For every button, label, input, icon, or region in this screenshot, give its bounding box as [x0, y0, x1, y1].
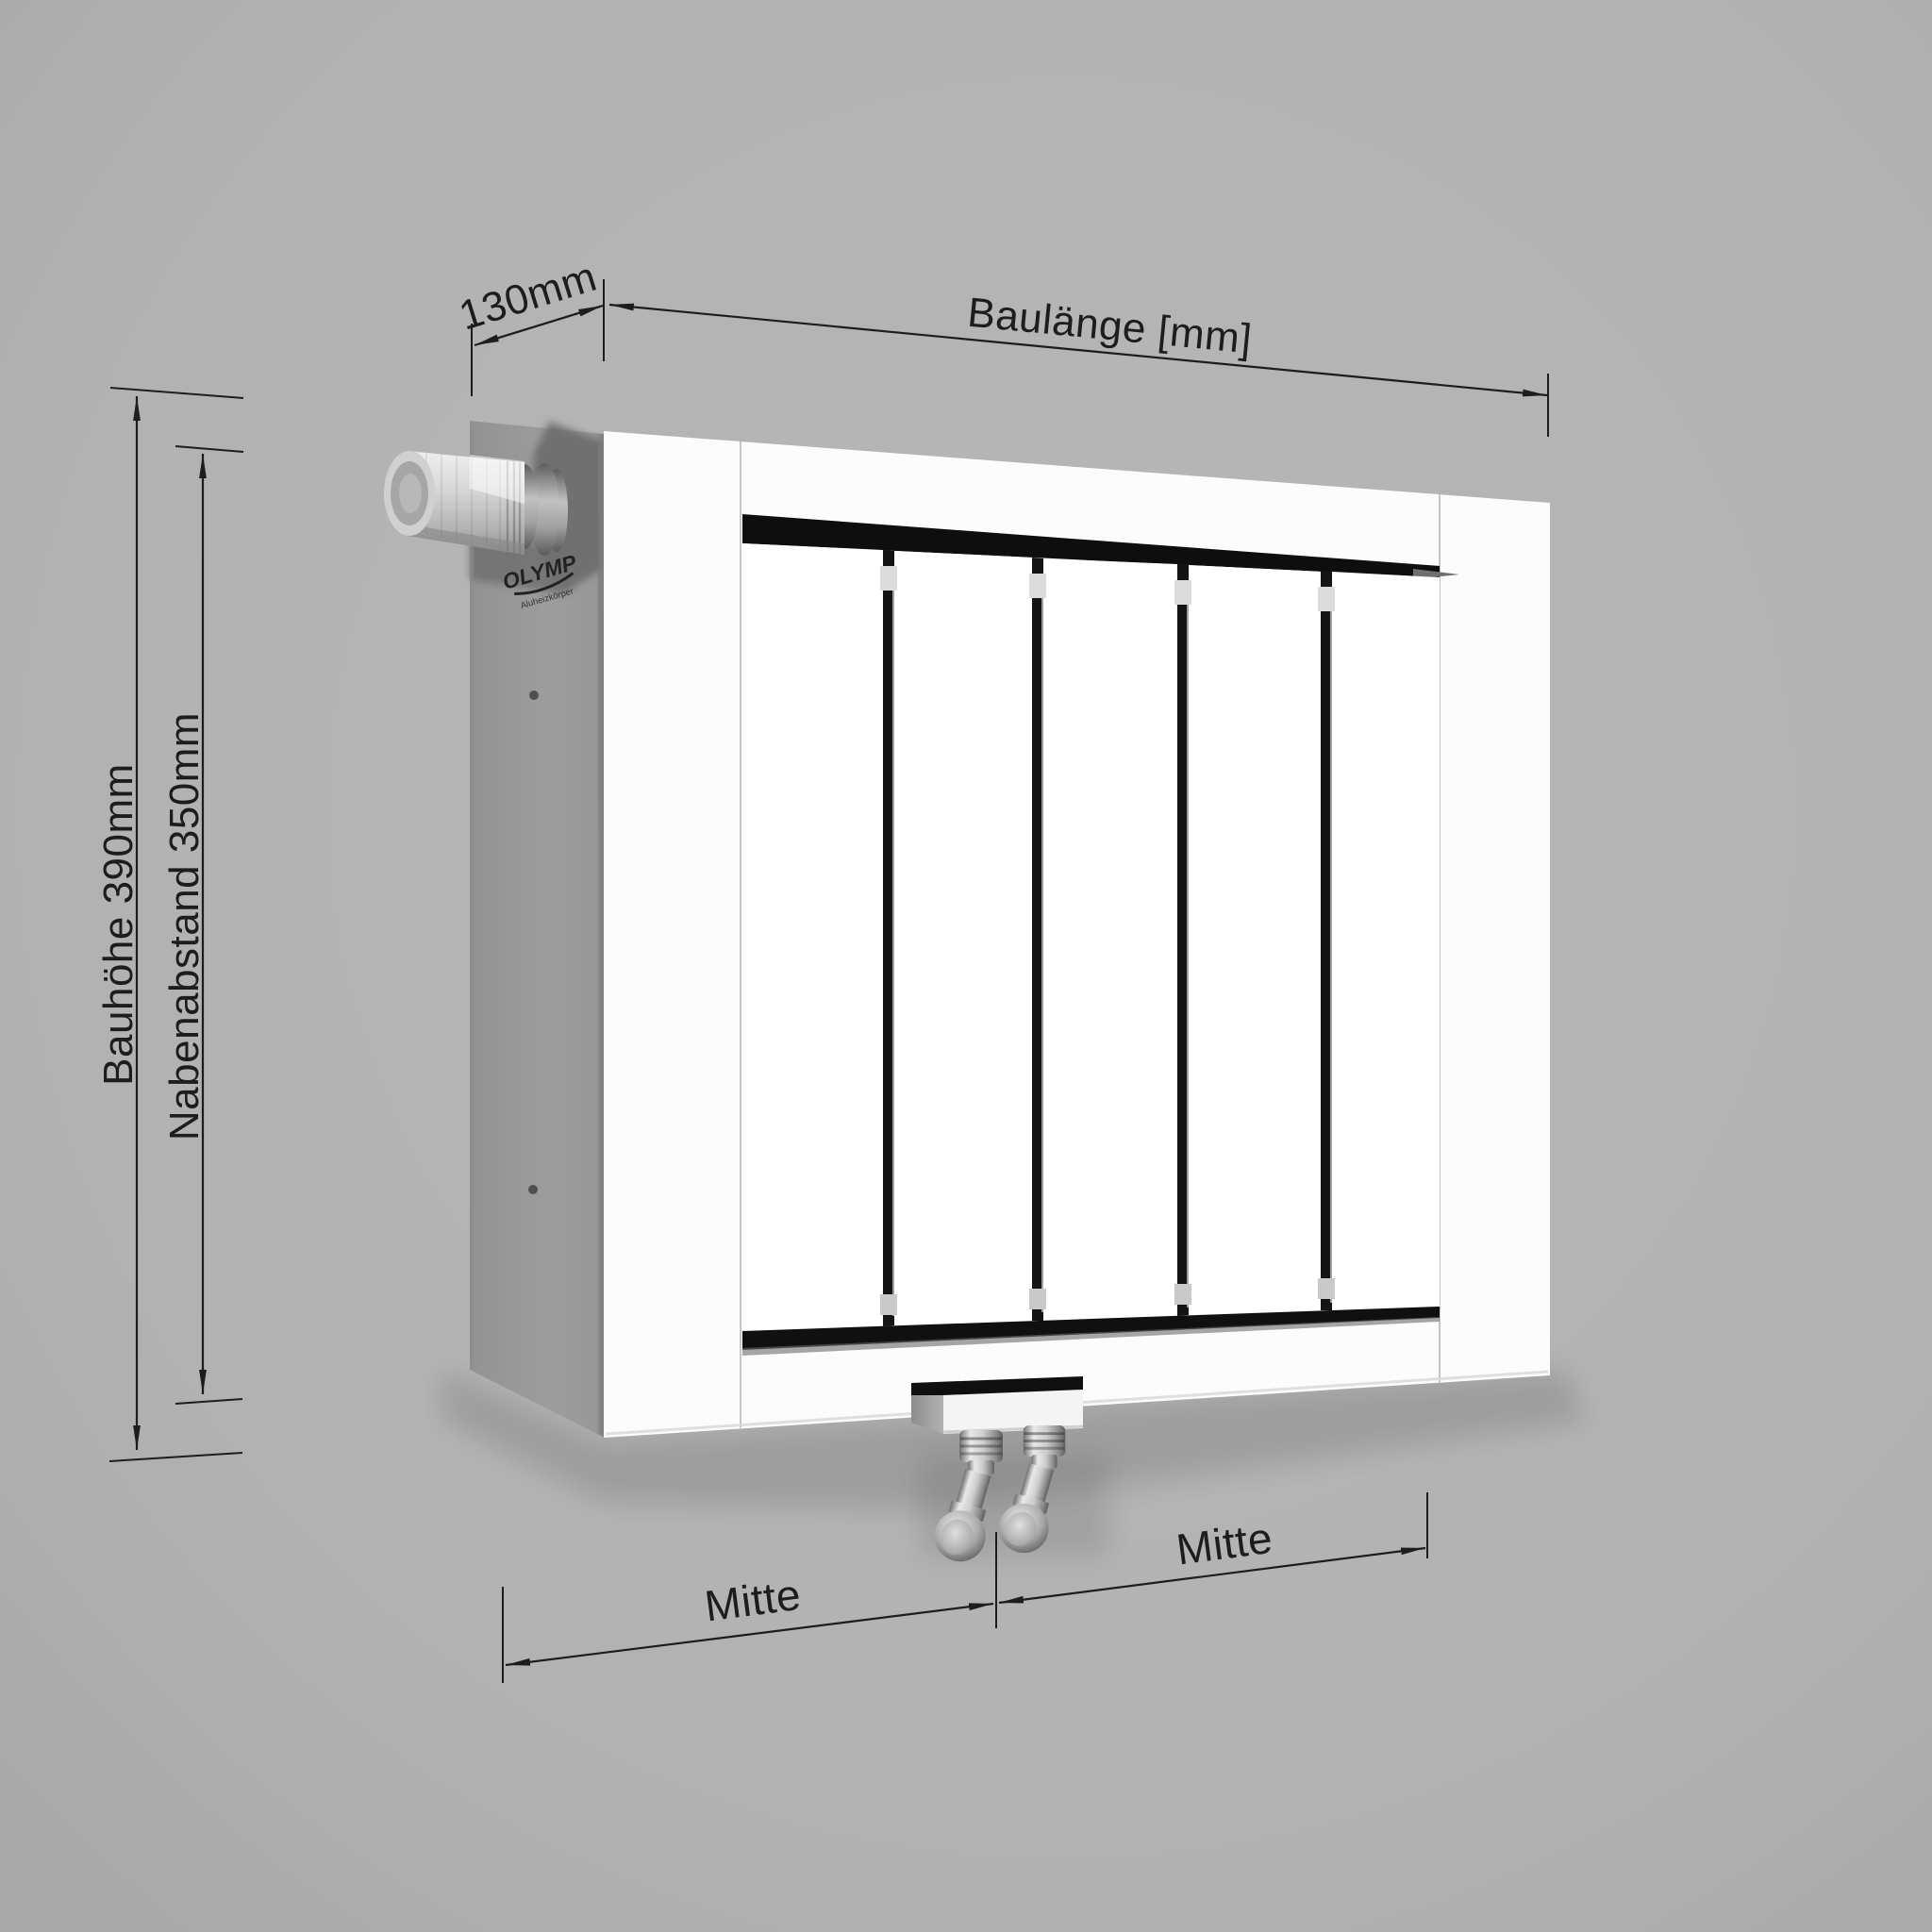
panel-4: [1189, 565, 1321, 1315]
height-label: Bauhöhe 390mm: [95, 763, 142, 1086]
radiator-side-panel: OLYMP Aluheizkörper: [470, 421, 605, 1438]
panel-3: [1043, 558, 1177, 1321]
side-screw-bottom: [528, 1185, 538, 1194]
radiator-dimension-diagram: OLYMP Aluheizkörper: [0, 0, 1932, 1932]
heating-panels: [742, 543, 1440, 1331]
radiator-front-face: [604, 431, 1550, 1438]
side-screw-top: [529, 691, 539, 700]
panel-2: [894, 551, 1032, 1325]
hub-spacing-label: Nabenabstand 350mm: [161, 712, 208, 1141]
panel-5: [1332, 572, 1440, 1310]
panel-1: [742, 543, 883, 1331]
